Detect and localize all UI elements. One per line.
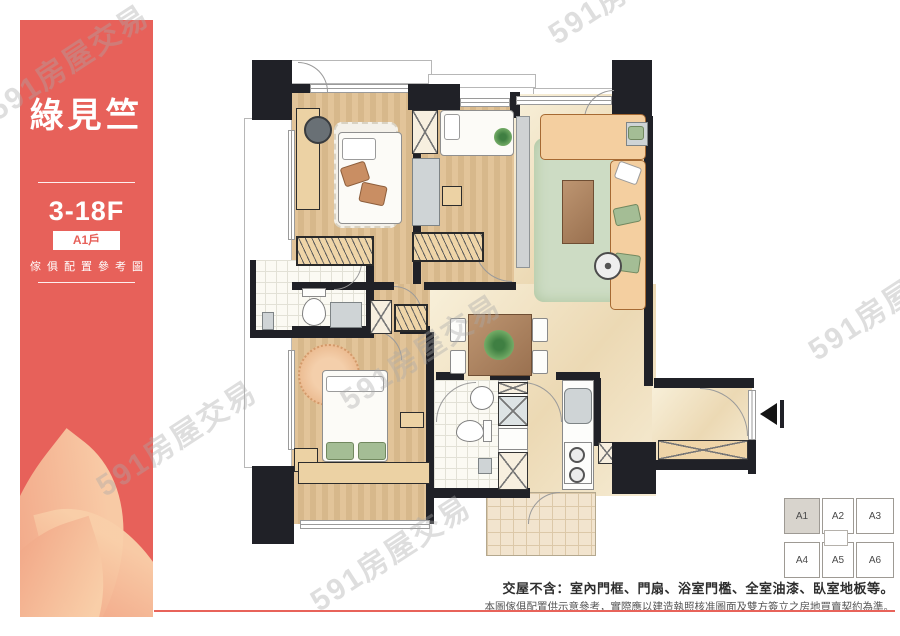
unit-badge: A1戶 (53, 231, 120, 250)
shower-fixture (262, 312, 274, 330)
disclaimer-block: 交屋不含：室內門框、門扇、浴室門檻、全室油漆、臥室地板等。 本圖傢俱配置供示意參… (474, 578, 894, 614)
plant (494, 128, 512, 146)
tv-wall (516, 116, 530, 268)
shower-fixture (478, 458, 492, 474)
pillow (326, 376, 384, 392)
wardrobe-hatch (296, 236, 374, 266)
keyplan-unit-a3: A3 (856, 498, 894, 534)
page: { "watermark": { "text": "591房屋交易", "col… (0, 0, 900, 636)
cabinet (498, 428, 528, 450)
coffee-table (562, 180, 594, 244)
toilet-tank (483, 420, 492, 442)
pillow (358, 442, 386, 460)
wall (252, 60, 292, 120)
stove-burner (569, 467, 585, 483)
wall (654, 378, 754, 388)
shoe-cabinet (658, 440, 748, 460)
cushion (628, 126, 644, 140)
divider (38, 182, 135, 183)
round-sink (470, 386, 494, 410)
keyplan-core (824, 530, 848, 546)
window (300, 520, 430, 529)
window (460, 98, 510, 107)
keyplan-unit-a2: A2 (822, 498, 854, 534)
entrance-arrow-bar (780, 400, 784, 428)
project-title: 綠見竺 (20, 88, 153, 137)
entry-door-panel (748, 390, 756, 440)
pillow (342, 138, 376, 160)
pillow (444, 114, 460, 140)
desk-chair (442, 186, 462, 206)
wall (250, 260, 256, 338)
wall (408, 84, 460, 110)
closet-xbox (412, 110, 438, 154)
stool (400, 412, 424, 428)
entrance-arrow-icon (760, 403, 777, 425)
wall (654, 460, 752, 470)
keyplan-unit-a4: A4 (784, 542, 820, 578)
dining-chair (532, 318, 548, 342)
pillow (326, 442, 354, 460)
vanity-sink (330, 302, 362, 328)
stove-burner (569, 447, 585, 463)
accent-divider-line (154, 610, 895, 612)
wall (594, 378, 601, 446)
toilet (456, 420, 484, 442)
storage-xbox (498, 452, 528, 490)
wall (612, 60, 652, 118)
watermark: 591房屋交易 (538, 0, 716, 53)
wall (612, 442, 656, 494)
furniture-caption: 傢俱配置參考圖 (20, 258, 153, 274)
kitchen-sink (564, 388, 592, 424)
window (288, 130, 295, 240)
toilet-tank (302, 288, 326, 297)
watermark: 591房屋交易 (798, 232, 900, 369)
dining-chair (450, 350, 466, 374)
disclaimer-line1: 交屋不含：室內門框、門扇、浴室門檻、全室油漆、臥室地板等。 (474, 578, 894, 597)
divider (38, 282, 135, 283)
floor-lamp (594, 252, 622, 280)
wall (424, 282, 516, 290)
keyplan-unit-a5: A5 (822, 542, 854, 578)
storage-xbox (498, 382, 528, 394)
floor-range-label: 3-18F (20, 196, 153, 227)
washer (498, 396, 528, 426)
toilet (302, 298, 326, 326)
wardrobe-hatch (394, 304, 428, 332)
bedroom-cabinet (298, 462, 430, 484)
floorplan (228, 46, 794, 562)
wardrobe-hatch (412, 232, 484, 262)
table-plant (484, 330, 514, 360)
wall (252, 466, 294, 544)
dining-chair (532, 350, 548, 374)
keyplan-unit-a6: A6 (856, 542, 894, 578)
keyplan-unit-a1: A1 (784, 498, 820, 534)
desk (412, 158, 440, 226)
sidebar-panel: 綠見竺 3-18F A1戶 傢俱配置參考圖 (20, 20, 153, 617)
key-plan: A1 A2 A3 A4 A5 A6 (778, 486, 896, 584)
window (288, 350, 295, 450)
dining-chair (450, 318, 466, 342)
vanity-mirror (304, 116, 332, 144)
closet-xbox (370, 300, 392, 334)
